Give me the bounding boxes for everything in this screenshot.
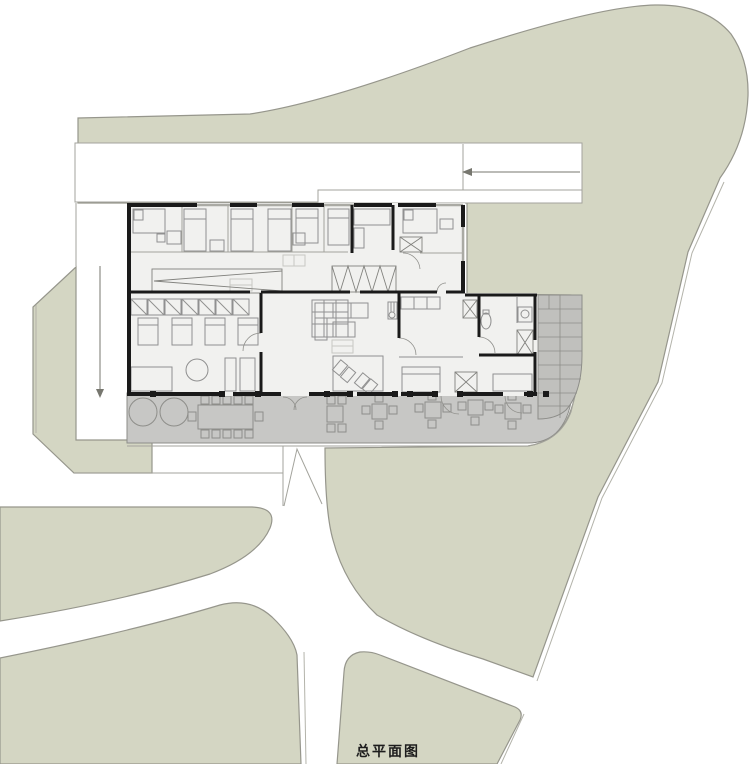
canopy-strip	[318, 190, 582, 203]
terrain-bottomleft	[0, 603, 301, 764]
terrace	[127, 390, 575, 446]
down-arrow-head	[96, 389, 104, 398]
terrain-edge-offset	[304, 652, 306, 764]
drawing-caption: 总平面图	[356, 741, 420, 761]
entry-road-triangle	[284, 449, 322, 506]
site-plan-drawing	[0, 0, 750, 764]
site-plan-page: 总平面图	[0, 0, 750, 764]
